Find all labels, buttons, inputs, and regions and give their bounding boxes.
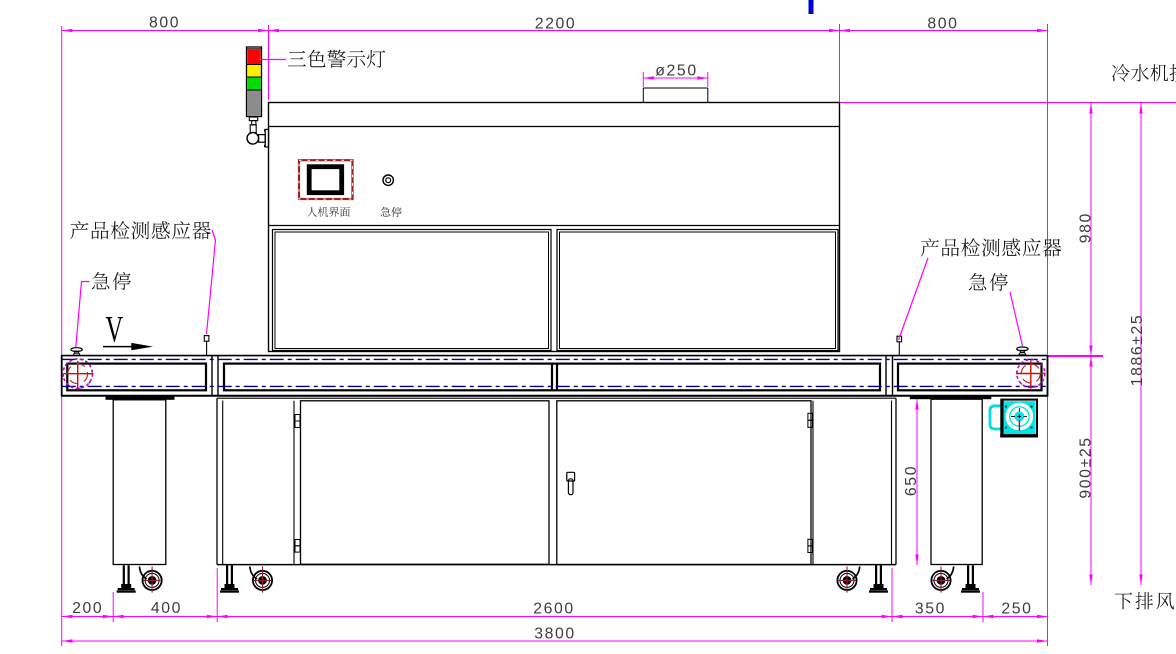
svg-text:1886±25: 1886±25 bbox=[1129, 314, 1146, 387]
svg-text:800: 800 bbox=[927, 16, 958, 33]
svg-text:650: 650 bbox=[903, 465, 920, 496]
svg-text:V: V bbox=[106, 308, 124, 349]
svg-text:250: 250 bbox=[1001, 601, 1032, 618]
svg-text:ø250: ø250 bbox=[655, 63, 697, 80]
svg-text:900±25: 900±25 bbox=[1077, 436, 1094, 498]
svg-text:980: 980 bbox=[1077, 212, 1094, 243]
svg-text:3800: 3800 bbox=[534, 626, 576, 643]
svg-text:350: 350 bbox=[915, 601, 946, 618]
svg-text:2600: 2600 bbox=[533, 601, 575, 618]
svg-text:200: 200 bbox=[72, 600, 103, 617]
svg-text:800: 800 bbox=[149, 15, 180, 32]
svg-text:2200: 2200 bbox=[535, 15, 577, 32]
svg-text:400: 400 bbox=[151, 600, 182, 617]
